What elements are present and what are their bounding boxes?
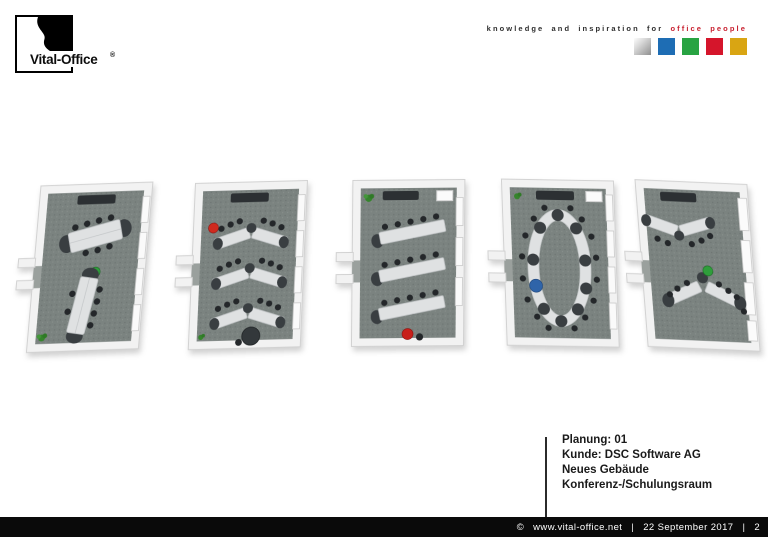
floorplan-2-chevron-rows [167,168,326,377]
cabinet [437,191,453,201]
tagline: knowledge and inspiration for office peo… [487,24,747,33]
tagline-prefix: knowledge and inspiration for [487,24,664,33]
blue-square [658,38,675,55]
floorplan-row [0,168,768,378]
logo-brand-text: Vital-Office [30,52,98,67]
footer-url-link[interactable]: www.vital-office.net [533,522,622,533]
sideboard [231,193,269,203]
project-plan-number: Planung: 01 [562,433,712,448]
red-square [706,38,723,55]
footer-separator: | [742,522,745,533]
footer-date: 22 September 2017 [643,522,733,533]
cabinet [586,192,602,202]
windows [455,198,463,306]
sideboard [77,194,116,204]
sideboard [383,191,419,200]
footer-page-number: 2 [754,522,760,533]
floorplan-4-oval-conference [481,167,638,375]
door-leaf [18,258,36,268]
presentation-page: Vital-Office ® knowledge and inspiration… [0,0,768,541]
project-info: Planung: 01 Kunde: DSC Software AG Neues… [562,433,712,493]
door-leaf [336,252,353,261]
vital-office-logo: Vital-Office ® [15,15,165,82]
floorplan-5-double-v [614,167,768,379]
brand-color-squares [634,38,747,55]
logo-registered-mark: ® [110,51,116,59]
floorplan-3-straight-rows [331,167,483,373]
door-leaf [488,251,505,260]
silver-square [634,38,651,55]
copyright-symbol: © [517,522,524,533]
gold-square [730,38,747,55]
door-leaf [625,251,643,261]
red-stool [402,328,413,339]
project-building: Neues Gebäude [562,463,712,478]
project-customer: Kunde: DSC Software AG [562,448,712,463]
floorplan-1-two-table-groups [4,169,172,380]
green-square [682,38,699,55]
door-leaf [176,256,193,265]
blue-seat [529,279,542,292]
footer-separator: | [631,522,634,533]
info-divider-line [545,437,547,517]
sideboard [660,192,697,203]
tagline-highlight: office people [670,24,747,33]
project-room-type: Konferenz-/Schulungsraum [562,478,712,493]
sideboard [536,191,574,201]
footer-bar: © www.vital-office.net | 22 September 20… [0,517,768,537]
